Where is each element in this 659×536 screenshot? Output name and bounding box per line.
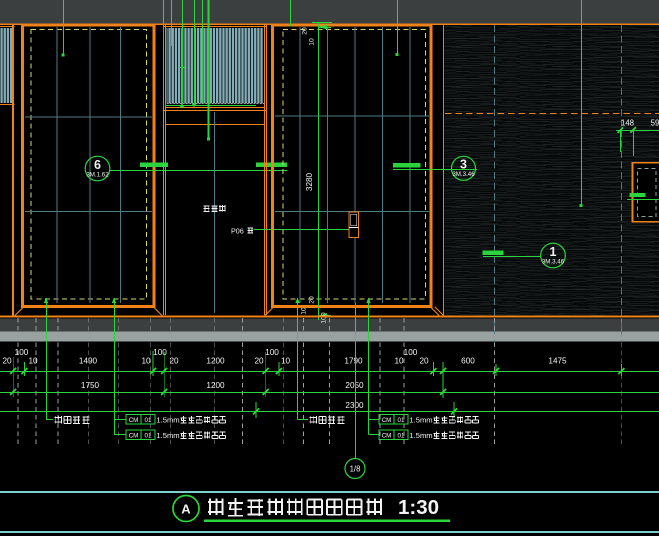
svg-text:P06: P06: [231, 227, 244, 236]
svg-text:1490: 1490: [79, 357, 98, 366]
svg-text:1/8: 1/8: [350, 465, 361, 474]
svg-text:20: 20: [419, 357, 429, 366]
svg-text:01: 01: [398, 433, 405, 440]
svg-text:20: 20: [2, 357, 12, 366]
svg-text:01: 01: [398, 417, 405, 424]
svg-text:CM: CM: [129, 433, 139, 440]
svg-text:20: 20: [254, 357, 264, 366]
svg-text:1790: 1790: [344, 357, 363, 366]
svg-text:6: 6: [94, 158, 101, 172]
svg-text:148: 148: [621, 119, 634, 128]
svg-text:3M.3.46: 3M.3.46: [542, 259, 565, 266]
svg-text:CM: CM: [382, 417, 392, 424]
svg-text:2050: 2050: [345, 381, 364, 390]
svg-text:100: 100: [15, 348, 29, 357]
svg-text:1750: 1750: [81, 381, 100, 390]
svg-text:100: 100: [265, 348, 279, 357]
svg-text:1.5mm: 1.5mm: [156, 431, 179, 440]
svg-text:600: 600: [461, 357, 475, 366]
svg-text:20: 20: [169, 357, 179, 366]
svg-text:1.5mm: 1.5mm: [156, 416, 179, 425]
svg-text:10: 10: [394, 357, 404, 366]
svg-text:59: 59: [651, 119, 659, 128]
svg-text:10: 10: [281, 357, 291, 366]
svg-text:A: A: [181, 502, 191, 517]
svg-text:10: 10: [301, 307, 308, 315]
svg-text:1475: 1475: [548, 357, 567, 366]
svg-text:1:30: 1:30: [398, 496, 439, 519]
svg-text:100: 100: [321, 312, 328, 324]
svg-text:01: 01: [145, 417, 152, 424]
svg-text:1.5mm: 1.5mm: [409, 416, 432, 425]
svg-text:100: 100: [153, 348, 167, 357]
svg-text:3M.3.46: 3M.3.46: [452, 171, 475, 178]
svg-text:CM: CM: [382, 433, 392, 440]
svg-text:1200: 1200: [206, 357, 225, 366]
svg-text:100: 100: [404, 348, 418, 357]
svg-text:10: 10: [141, 357, 151, 366]
svg-text:10: 10: [28, 357, 38, 366]
svg-text:01: 01: [145, 433, 152, 440]
svg-text:20: 20: [309, 296, 316, 304]
svg-text:10: 10: [309, 38, 316, 46]
svg-text:3280: 3280: [305, 172, 314, 191]
svg-text:20: 20: [302, 27, 309, 35]
svg-text:CM: CM: [129, 417, 139, 424]
svg-text:1200: 1200: [206, 381, 225, 390]
svg-text:2300: 2300: [345, 401, 364, 410]
svg-text:3M.1.62: 3M.1.62: [86, 171, 109, 178]
svg-text:1: 1: [550, 245, 557, 259]
svg-text:1.5mm: 1.5mm: [409, 431, 432, 440]
